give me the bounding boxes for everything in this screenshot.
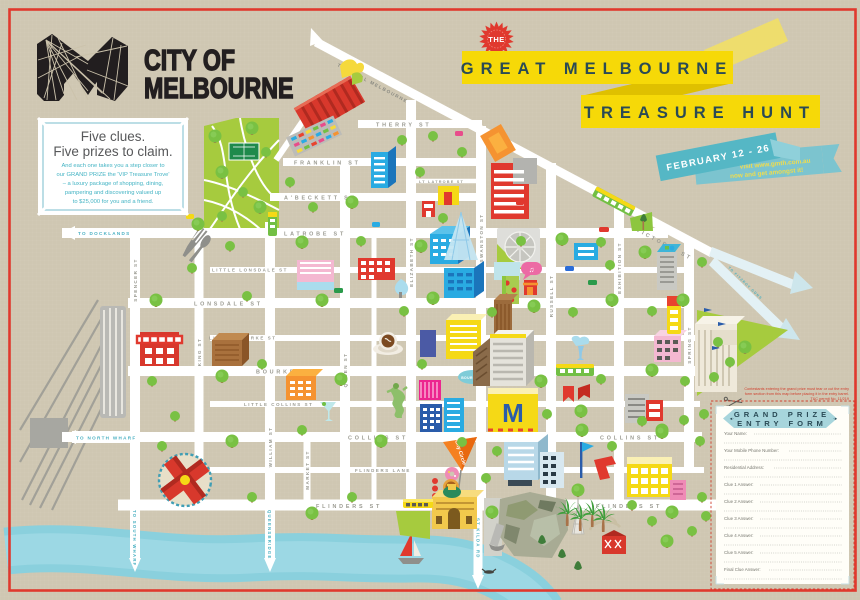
svg-text:Your Name:: Your Name: xyxy=(724,431,747,436)
svg-text:QUEENSBRIDGE: QUEENSBRIDGE xyxy=(267,510,272,560)
svg-text:FLINDERS ST: FLINDERS ST xyxy=(316,504,382,510)
svg-text:THERRY ST: THERRY ST xyxy=(376,123,431,129)
svg-text:FRANKLIN ST: FRANKLIN ST xyxy=(294,161,361,167)
svg-text:MARKET ST: MARKET ST xyxy=(305,450,310,489)
svg-text:– a luxury package of shopping: – a luxury package of shopping, dining, xyxy=(63,181,164,187)
svg-text:form section from this map bef: form section from this map before placin… xyxy=(745,392,849,396)
svg-text:Five clues.: Five clues. xyxy=(81,129,146,144)
svg-text:♫: ♫ xyxy=(529,265,535,274)
svg-text:And each one takes you a step: And each one takes you a step closer to xyxy=(61,163,164,169)
svg-text:LATROBE ST: LATROBE ST xyxy=(284,232,346,238)
svg-text:our GRAND PRIZE the 'VIP Treas: our GRAND PRIZE the 'VIP Treasure Trove' xyxy=(57,172,170,178)
svg-text:Residential Address:: Residential Address: xyxy=(724,465,764,470)
svg-text:EXHIBITION ST: EXHIBITION ST xyxy=(617,242,622,294)
svg-text:Your Mobile Phone Number:: Your Mobile Phone Number: xyxy=(724,448,779,453)
svg-text:COLLINS ST: COLLINS ST xyxy=(600,436,660,442)
svg-text:M: M xyxy=(502,398,524,428)
svg-text:to $25,000 for you and a frien: to $25,000 for you and a friend. xyxy=(73,199,154,205)
svg-text:Clue 4 Answer:: Clue 4 Answer: xyxy=(724,533,754,538)
svg-text:Clue 5 Answer:: Clue 5 Answer: xyxy=(724,550,754,555)
svg-text:WILLIAM ST: WILLIAM ST xyxy=(268,427,273,468)
svg-text:MELBOURNE: MELBOURNE xyxy=(144,71,293,104)
svg-text:TO SOUTH WHARF: TO SOUTH WHARF xyxy=(132,510,137,567)
svg-text:Clue 1 Answer:: Clue 1 Answer: xyxy=(724,482,754,487)
svg-text:RUSSELL ST: RUSSELL ST xyxy=(549,275,554,318)
svg-text:pampering and discovering valu: pampering and discovering valued up xyxy=(65,190,161,196)
svg-text:LITTLE LONSDALE ST: LITTLE LONSDALE ST xyxy=(212,268,288,273)
svg-text:ELIZABETH ST: ELIZABETH ST xyxy=(409,237,414,287)
svg-text:TO DOCKLANDS: TO DOCKLANDS xyxy=(78,231,131,236)
svg-text:ENTRY FORM: ENTRY FORM xyxy=(737,419,827,428)
svg-text:THE: THE xyxy=(488,35,505,44)
svg-text:FLINDERS LANE: FLINDERS LANE xyxy=(355,468,411,473)
svg-text:Final Clue Answer:: Final Clue Answer: xyxy=(724,567,761,572)
svg-text:SPENCER ST: SPENCER ST xyxy=(133,258,138,301)
svg-text:KING ST: KING ST xyxy=(197,338,202,366)
svg-text:Clue 2 Answer:: Clue 2 Answer: xyxy=(724,499,754,504)
svg-text:TREASURE HUNT: TREASURE HUNT xyxy=(584,104,816,122)
svg-text:Clue 3 Answer:: Clue 3 Answer: xyxy=(724,516,754,521)
svg-text:T&C permit No. 11/219: T&C permit No. 11/219 xyxy=(810,397,849,401)
svg-text:LITTLE COLLINS ST: LITTLE COLLINS ST xyxy=(244,402,313,407)
svg-text:TO NORTH WHARF: TO NORTH WHARF xyxy=(76,436,136,441)
svg-text:Contestants entering the grand: Contestants entering the grand prize mus… xyxy=(744,387,849,391)
svg-text:GRAND PRIZE: GRAND PRIZE xyxy=(734,410,830,419)
svg-text:GREAT MELBOURNE: GREAT MELBOURNE xyxy=(461,60,733,78)
svg-text:·►: ·► xyxy=(833,416,838,421)
svg-text:◄·: ◄· xyxy=(729,416,734,421)
svg-text:SPRING ST: SPRING ST xyxy=(687,326,692,363)
svg-text:SWANSTON ST: SWANSTON ST xyxy=(479,213,484,262)
svg-text:Five prizes to claim.: Five prizes to claim. xyxy=(53,144,172,159)
svg-text:LT LATROBE ST: LT LATROBE ST xyxy=(419,180,464,184)
svg-text:LONSDALE ST: LONSDALE ST xyxy=(194,302,263,308)
